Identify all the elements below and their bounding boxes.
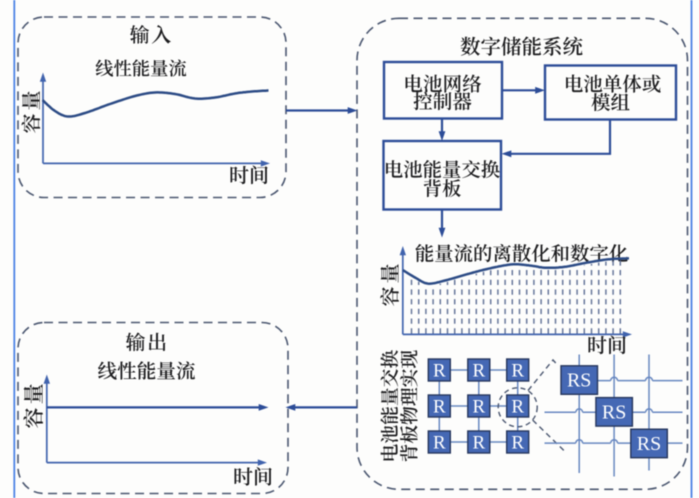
- svg-text:R: R: [511, 360, 524, 381]
- svg-text:R: R: [511, 396, 524, 417]
- svg-text:RS: RS: [602, 402, 626, 424]
- svg-text:R: R: [511, 432, 524, 453]
- svg-text:R: R: [472, 396, 485, 417]
- svg-text:RS: RS: [637, 433, 661, 455]
- svg-text:R: R: [433, 432, 446, 453]
- svg-text:R: R: [472, 432, 485, 453]
- svg-text:RS: RS: [567, 370, 591, 392]
- svg-text:R: R: [433, 360, 446, 381]
- svg-text:R: R: [433, 396, 446, 417]
- svg-text:R: R: [472, 360, 485, 381]
